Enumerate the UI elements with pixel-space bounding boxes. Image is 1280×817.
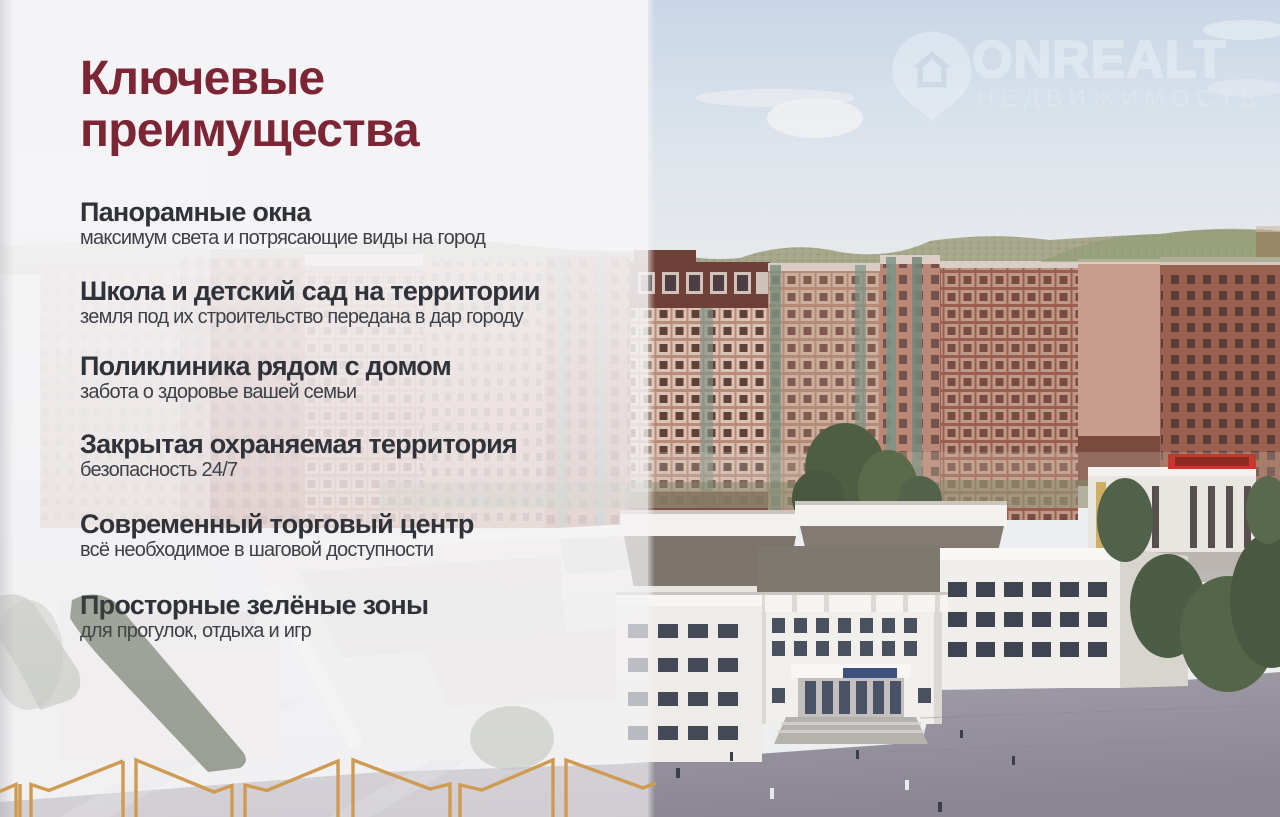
svg-text:ONREALT: ONREALT <box>972 31 1226 89</box>
svg-text:НЕДВИЖИМОСТЬ: НЕДВИЖИМОСТЬ <box>977 85 1263 112</box>
